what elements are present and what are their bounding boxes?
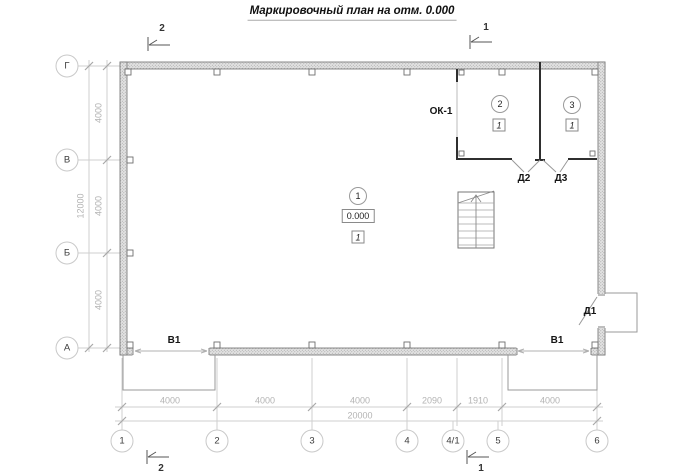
section-mark-top-right: 1 xyxy=(483,23,489,33)
axis-lines xyxy=(78,60,603,430)
room-bubble-2: 2 xyxy=(491,95,509,113)
floor-plan-page: Маркировочный план на отм. 0.000 2 1 2 1… xyxy=(0,0,700,474)
dimension-ticks xyxy=(85,62,601,425)
window-label-ok1: ОК-1 xyxy=(430,107,453,117)
opening-jambs xyxy=(133,295,605,355)
axis-bubble-3: 3 xyxy=(301,430,324,453)
section-mark-bottom-left: 2 xyxy=(158,464,164,474)
floor-type-box-room1: 1 xyxy=(352,231,365,244)
axis-bubble-1: 1 xyxy=(111,430,134,453)
axis-bubble-4: 4 xyxy=(396,430,419,453)
dim-left-seg3: 4000 xyxy=(95,290,104,310)
dim-bottom-total: 20000 xyxy=(347,412,372,421)
section-mark-top-left: 2 xyxy=(159,24,165,34)
door-label-d2: Д2 xyxy=(518,174,531,184)
axis-bubble-v: В xyxy=(56,149,79,172)
staircase xyxy=(458,191,494,248)
dim-left-total: 12000 xyxy=(77,193,86,218)
door-swings xyxy=(512,160,597,325)
door-label-d1: Д1 xyxy=(584,307,597,317)
axis-bubble-a: А xyxy=(56,337,79,360)
floor-type-box-room2: 1 xyxy=(493,119,506,132)
dim-bottom-seg5: 1910 xyxy=(468,397,488,406)
dim-left-seg2: 4000 xyxy=(95,196,104,216)
gate-label-v1-right: В1 xyxy=(551,336,564,346)
section-mark-bottom-right: 1 xyxy=(478,464,484,474)
wall-openings xyxy=(133,294,607,356)
axis-bubble-g: Г xyxy=(56,55,79,78)
dim-bottom-seg1: 4000 xyxy=(160,397,180,406)
elevation-mark: 0.000 xyxy=(342,209,375,223)
room-bubble-3: 3 xyxy=(563,96,581,114)
dim-bottom-seg3: 4000 xyxy=(350,397,370,406)
dim-left-seg1: 4000 xyxy=(95,103,104,123)
axis-bubble-5: 5 xyxy=(487,430,510,453)
dim-bottom-seg4: 2090 xyxy=(422,397,442,406)
axis-bubble-6: 6 xyxy=(586,430,609,453)
axis-bubble-41: 4/1 xyxy=(442,430,465,453)
door-label-d3: Д3 xyxy=(555,174,568,184)
axis-bubble-b: Б xyxy=(56,242,79,265)
axis-bubble-2: 2 xyxy=(206,430,229,453)
gate-label-v1-left: В1 xyxy=(168,336,181,346)
page-title: Маркировочный план на отм. 0.000 xyxy=(248,6,457,21)
floor-type-box-room3: 1 xyxy=(566,119,579,132)
dim-bottom-seg6: 4000 xyxy=(540,397,560,406)
room-bubble-1: 1 xyxy=(349,187,367,205)
dim-bottom-seg2: 4000 xyxy=(255,397,275,406)
